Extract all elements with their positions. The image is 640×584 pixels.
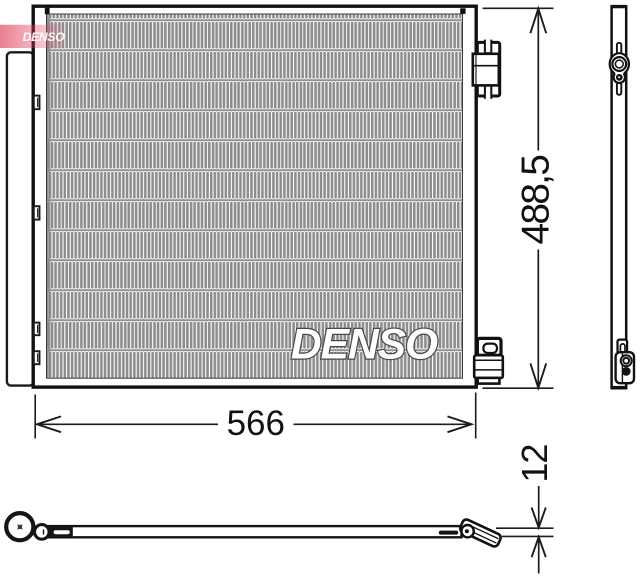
svg-text:488,5: 488,5 — [515, 155, 558, 245]
svg-text:DENSO: DENSO — [291, 322, 438, 369]
svg-text:566: 566 — [227, 404, 285, 443]
svg-text:12: 12 — [514, 445, 555, 483]
svg-text:DENSO: DENSO — [23, 30, 66, 44]
